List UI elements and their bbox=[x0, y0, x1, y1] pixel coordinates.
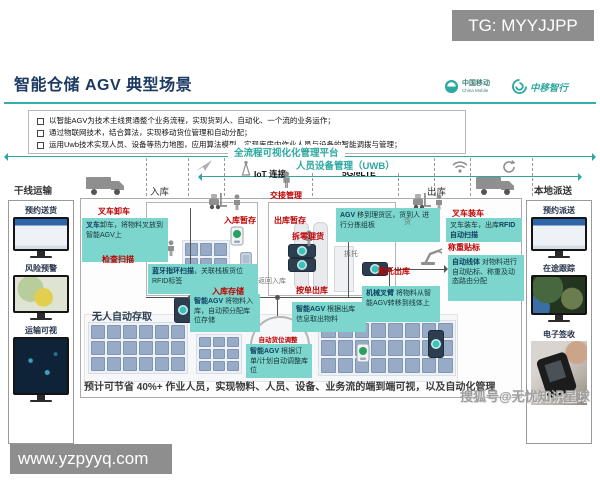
pallet-cell bbox=[213, 361, 225, 371]
pallet-cell bbox=[321, 358, 336, 373]
pallet-cell bbox=[371, 323, 386, 338]
dark-map-screenshot bbox=[15, 339, 67, 393]
pallet-cell bbox=[155, 325, 169, 339]
left-side-panel: 预约送货 风险预警 运输可视 bbox=[8, 200, 74, 444]
note-agv-adjust: 智能AGV 根据订单/计划自动调整库位 bbox=[246, 344, 312, 378]
connector-dashed bbox=[224, 158, 225, 196]
panel-item-label: 在途跟踪 bbox=[527, 263, 591, 274]
note-forklift-load: 叉车装车，出库RFID自动扫描 bbox=[446, 218, 522, 242]
pallet-cell bbox=[422, 358, 437, 373]
label-auto-slot-adjust: 自动货位调整 bbox=[250, 334, 306, 344]
label-order-out: 按单出库 bbox=[296, 285, 328, 296]
drone-icon bbox=[196, 160, 212, 172]
note-lead: 智能AGV bbox=[296, 306, 325, 313]
connector-dashed bbox=[188, 158, 189, 196]
pallet-cell bbox=[338, 340, 353, 355]
pallet-cell bbox=[139, 341, 153, 355]
right-side-panel: 预约派送 在途跟踪 电子签收 bbox=[526, 200, 592, 444]
pallet-cell bbox=[388, 340, 403, 355]
connector-dashed bbox=[470, 158, 471, 196]
bullet-text: 通过物联网技术，结合算法，实现移动货位管理和自动分配； bbox=[49, 127, 252, 139]
label-forklift-load: 叉车装车 bbox=[452, 208, 484, 219]
pallet-cell bbox=[123, 341, 137, 355]
bullet-text: 以智能AGV为技术主线贯通整个业务流程，实现货到人、自动化、一个流的业务运作； bbox=[49, 115, 335, 127]
china-mobile-sublabel: China Mobile bbox=[462, 88, 490, 93]
panel-item-label: 风险预警 bbox=[9, 263, 73, 274]
pallet-cell bbox=[213, 349, 225, 359]
scale-icon bbox=[230, 226, 244, 246]
site-watermark: www.yzpyyq.com bbox=[10, 444, 172, 474]
cmzx-label: 中移智行 bbox=[530, 80, 568, 94]
china-mobile-label: 中国移动 bbox=[462, 80, 490, 88]
satellite-screenshot bbox=[533, 277, 585, 313]
booking-delivery-monitor bbox=[13, 217, 69, 251]
transport-visibility-monitor bbox=[13, 337, 69, 395]
pallet-cell bbox=[338, 358, 353, 373]
agv-robot bbox=[428, 330, 444, 358]
truck-icon bbox=[86, 174, 126, 196]
ui-screenshot bbox=[533, 219, 585, 249]
pallet-cell bbox=[155, 341, 169, 355]
pallet-cell bbox=[199, 349, 211, 359]
pallet-cell bbox=[107, 325, 121, 339]
bullet-square-icon bbox=[37, 130, 44, 137]
note-lead: 智能AGV bbox=[194, 298, 223, 305]
pallet-cell bbox=[214, 243, 227, 256]
china-mobile-icon bbox=[444, 79, 459, 94]
pallet-cell bbox=[91, 357, 105, 371]
pallet-cell bbox=[107, 357, 121, 371]
label-pick-sort: 拆零理货 bbox=[292, 231, 324, 242]
pallet-cell bbox=[91, 325, 105, 339]
cycle-icon bbox=[502, 160, 516, 174]
pallet-cell bbox=[139, 325, 153, 339]
pallet-cell bbox=[388, 323, 403, 338]
tg-watermark: TG: MYYJJPP bbox=[452, 10, 594, 41]
note-lead: 叉车 bbox=[86, 222, 100, 229]
platform-bar-label: 全流程可视化化管理平台 bbox=[228, 145, 345, 159]
bullet-item: 通过物联网技术，结合算法，实现移动货位管理和自动分配； bbox=[37, 127, 457, 139]
title-divider bbox=[4, 102, 596, 104]
ui-screenshot bbox=[15, 219, 67, 249]
pallet-cell bbox=[200, 243, 213, 256]
label-full-pallet-out: 整托出库 bbox=[378, 266, 410, 277]
uwb-bar-label: 人员设备管理（UWB） bbox=[290, 158, 401, 172]
wifi-icon bbox=[452, 161, 468, 173]
panel-item-label: 预约送货 bbox=[9, 205, 73, 216]
page-title: 智能仓储 AGV 典型场景 bbox=[14, 71, 192, 95]
note-lead: 自动线体 bbox=[452, 259, 480, 266]
uwb-arrow-left bbox=[194, 173, 202, 181]
label-weigh-label: 称重贴标 bbox=[448, 242, 480, 253]
pallet-cell bbox=[155, 357, 169, 371]
pallet-cell bbox=[227, 361, 239, 371]
person-icon bbox=[232, 194, 242, 210]
pallet-cell bbox=[405, 358, 420, 373]
pallet-cell bbox=[405, 340, 420, 355]
truck-icon bbox=[476, 174, 516, 196]
pallet-cell bbox=[171, 341, 185, 355]
panel-item-label: 运输可视 bbox=[9, 325, 73, 336]
label-cargo: 货 bbox=[404, 217, 411, 227]
pallet-cell bbox=[371, 340, 386, 355]
bullet-item: 以智能AGV为技术主线贯通整个业务流程，实现货到人、自动化、一个流的业务运作； bbox=[37, 115, 457, 127]
note-text: 叉车装车，出库 bbox=[450, 222, 499, 229]
zone-local-delivery: 本地派送 bbox=[534, 183, 572, 197]
robot-arm-icon bbox=[420, 246, 444, 266]
panel-item-label: 电子签收 bbox=[527, 329, 591, 340]
note-lead: 蓝牙指环扫描 bbox=[152, 268, 194, 275]
bullet-square-icon bbox=[37, 142, 44, 149]
bullet-square-icon bbox=[37, 118, 44, 125]
sohu-watermark: 搜狐号@无忧知识星球 bbox=[460, 386, 590, 405]
uwb-arrow-right bbox=[578, 173, 586, 181]
note-auto-line: 自动线体 对物料进行自动贴标、称重及动态路由分配 bbox=[448, 255, 524, 301]
in-transit-tracking-monitor bbox=[531, 275, 587, 315]
note-lead: AGV bbox=[340, 212, 355, 219]
label-return-inbound: 返回入库 bbox=[258, 276, 286, 286]
pallet-cell bbox=[199, 361, 211, 371]
label-check-scan: 检查扫描 bbox=[102, 254, 134, 265]
label-outbound-staging: 出库暂存 bbox=[274, 215, 306, 226]
label-inbound-storage: 入库存储 bbox=[212, 286, 244, 297]
pallet-cell bbox=[388, 358, 403, 373]
handover-label: 交接管理 bbox=[270, 190, 302, 201]
pallet-cell bbox=[371, 358, 386, 373]
agv-robot bbox=[288, 244, 316, 258]
cmzx-logo: 中移智行 bbox=[512, 79, 568, 94]
note-agv-fetch: 智能AGV 根据出库信息取出物料 bbox=[292, 302, 366, 332]
flow-line bbox=[146, 297, 390, 298]
pallet-cell bbox=[123, 325, 137, 339]
label-inbound-staging: 入库暂存 bbox=[224, 215, 256, 226]
note-lead: 智能AGV bbox=[250, 348, 279, 355]
pallet-cell bbox=[171, 325, 185, 339]
bullet-text: 运用Uwb技术实现人员、设备等热力地图，应用算法模型，实现库房内作业人员与设备的… bbox=[49, 139, 402, 151]
benefit-summary: 预计可节省 40%+ 作业人员，实现物料、人员、设备、业务流的端到端可视，以及自… bbox=[84, 378, 460, 393]
pallet-cell bbox=[199, 337, 211, 347]
note-agv-store: 智能AGV 将物料入库，自动预分配库位存储 bbox=[190, 294, 260, 332]
pallet-cell bbox=[171, 357, 185, 371]
booking-dispatch-monitor bbox=[531, 217, 587, 251]
pallet-grid bbox=[196, 334, 242, 374]
cmzx-swirl-icon bbox=[512, 79, 527, 94]
pallet-cell bbox=[405, 323, 420, 338]
forklift-icon bbox=[208, 192, 228, 210]
panel-item-label: 预约派送 bbox=[527, 205, 591, 216]
pallet-cell bbox=[139, 357, 153, 371]
pallet-cell bbox=[123, 357, 137, 371]
signal-tower-icon bbox=[240, 160, 252, 176]
pallet-cell bbox=[185, 243, 198, 256]
scale-icon bbox=[356, 342, 370, 364]
china-mobile-logo: 中国移动China Mobile bbox=[444, 79, 490, 94]
person-icon bbox=[281, 171, 292, 188]
pallet-grid bbox=[88, 322, 188, 374]
label-depalletize: 拆托 bbox=[344, 249, 358, 259]
note-robot-arm: 机械叉臂 将物料从智能AGV转移到线体上 bbox=[362, 286, 440, 322]
note-lead: 机械叉臂 bbox=[366, 290, 394, 297]
label-unmanned-access: 无人自动存取 bbox=[92, 308, 152, 323]
zone-inbound: 入库 bbox=[150, 184, 169, 198]
pallet-cell bbox=[107, 341, 121, 355]
flow-line bbox=[277, 298, 278, 316]
pallet-cell bbox=[91, 341, 105, 355]
risk-warning-monitor bbox=[13, 275, 69, 313]
pallet-cell bbox=[321, 340, 336, 355]
map-screenshot bbox=[15, 277, 67, 311]
flow-junction bbox=[275, 295, 280, 300]
pallet-cell bbox=[213, 337, 225, 347]
connector-dashed bbox=[532, 158, 533, 196]
platform-arrow-left bbox=[0, 153, 8, 161]
label-forklift-unload: 叉车卸车 bbox=[98, 206, 130, 217]
agv-robot bbox=[288, 258, 316, 272]
pallet-cell bbox=[227, 337, 239, 347]
platform-arrow-right bbox=[592, 153, 600, 161]
connector-dashed bbox=[146, 158, 147, 196]
note-agv-move: AGV 移到理货区，货到人 进行分拣组板 bbox=[336, 208, 440, 242]
pallet-cell bbox=[227, 349, 239, 359]
pallet-cell bbox=[438, 358, 453, 373]
zone-trunk-transport: 干线运输 bbox=[14, 183, 52, 197]
